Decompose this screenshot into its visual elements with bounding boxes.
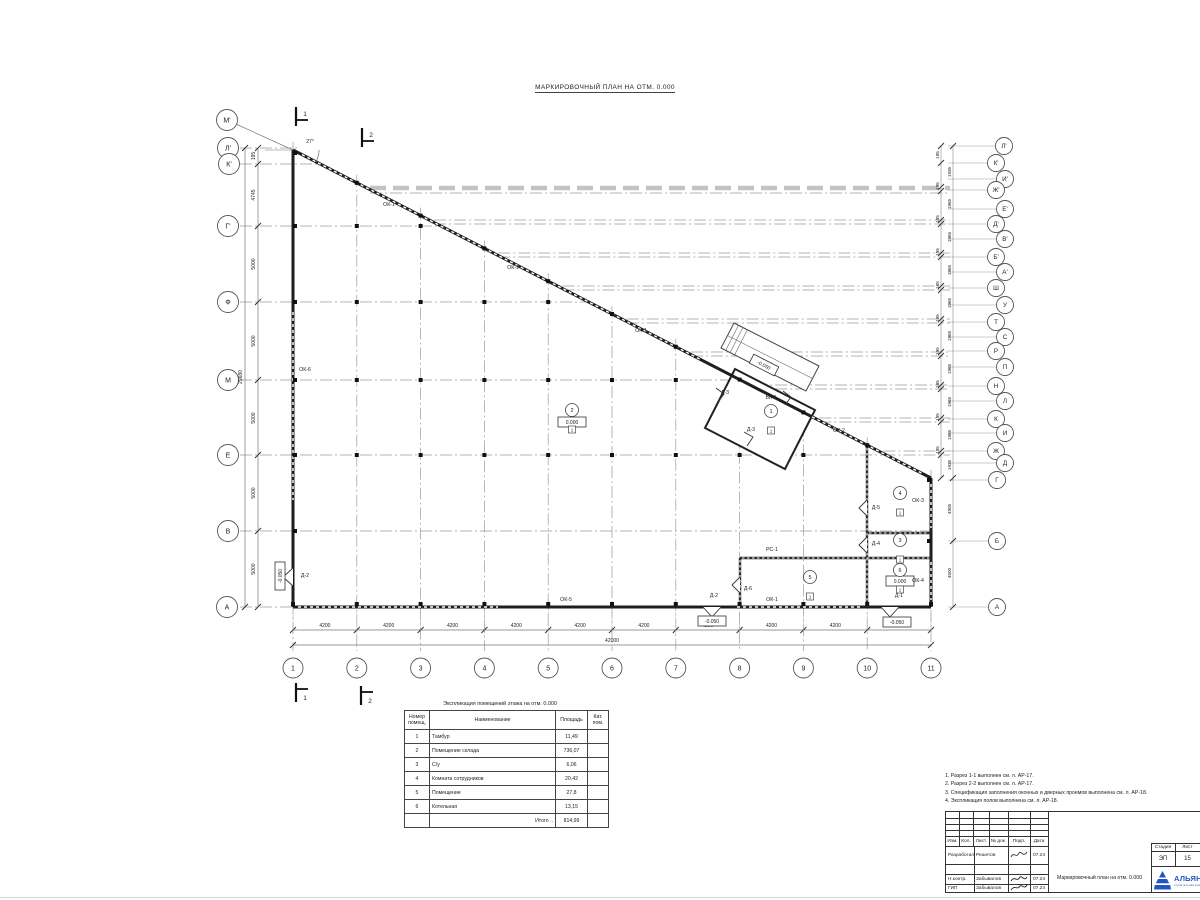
axis-bubble-label: 8 (738, 666, 742, 673)
sheet-label: Лист (1175, 843, 1200, 851)
window-door-label: Д-3 (747, 427, 755, 433)
door-symbol (703, 607, 721, 617)
schedule-table: Номер помещ.НаименованиеПлощадьКат. пом.… (404, 710, 609, 828)
axis-bubble-label: Б (995, 538, 999, 545)
dimension-text: 195 (935, 182, 940, 190)
sheet: МАРКИРОВОЧНЫЙ ПЛАН НА ОТМ. 0.000 1234567… (0, 0, 1200, 900)
axis-bubble-label: К' (226, 162, 231, 169)
column-marker (293, 151, 297, 155)
dimension-text: 4200 (638, 623, 649, 629)
logo-triangle-icon (1154, 871, 1171, 890)
column-marker (801, 453, 805, 457)
stamp-col-date: Дата (1030, 836, 1048, 846)
floor-plan: 1234567891011М'Л'К'Г'ФМЕВАЛ'К'И'Ж'Е'Д'В'… (0, 0, 1200, 760)
dimension-text: 5000 (251, 258, 257, 269)
title-block: Изм. Кол. Лист № док. Подп. Дата Разрабо… (945, 811, 1200, 893)
level-value: 0.000 (894, 579, 907, 585)
column-marker (355, 300, 359, 304)
column-marker (482, 453, 486, 457)
schedule-header: Номер помещ. (405, 711, 430, 730)
dimension-text: 195 (935, 413, 940, 421)
angle-arc (316, 150, 319, 162)
dimension-text: 42000 (605, 638, 619, 644)
dimension-text: 4500 (947, 567, 952, 578)
column-marker (865, 443, 869, 447)
axis-bubble-label: 7 (674, 666, 678, 673)
window-door-label: Вн-1 (766, 395, 777, 401)
stamp-role: Н.контр. (946, 874, 976, 884)
logo-subtext: строительная компания (1174, 883, 1200, 887)
window-door-label: ОК-1 (507, 265, 519, 271)
dimension-text: 195 (935, 314, 940, 322)
schedule-row: 2Помещение склада736,07 (405, 744, 609, 758)
axis-bubble-label: Е' (1002, 206, 1007, 213)
window-door-label: Д-4 (872, 541, 880, 547)
column-marker (610, 312, 614, 316)
notes: 1. Разрез 1-1 выполнен см. л. АР-17.2. Р… (945, 772, 1200, 806)
room-number: 4 (898, 491, 901, 497)
door-symbol (881, 607, 899, 617)
axis-bubble-label: Р (994, 348, 998, 355)
column-marker (419, 224, 423, 228)
column-marker (865, 602, 869, 606)
dimension-text: 1965 (947, 231, 952, 242)
dimension-text: 29680 (238, 370, 244, 384)
dimension-text: 4905 (947, 503, 952, 514)
total-value: 814,99 (556, 814, 588, 828)
signature (1008, 874, 1030, 884)
level-value: -0.050 (890, 620, 904, 626)
window-door-label: РС-1 (766, 547, 778, 553)
column-marker (738, 378, 742, 382)
axis-bubble-label: Л' (1001, 143, 1006, 150)
column-marker (738, 602, 742, 606)
dimension-text: 4200 (511, 623, 522, 629)
stamp-col-list: Лист (973, 836, 989, 846)
stamp-col-kol: Кол. (959, 836, 973, 846)
dimension-text: 5000 (251, 335, 257, 346)
dimension-text: 195 (935, 215, 940, 223)
column-marker (546, 453, 550, 457)
schedule-header: Наименование (430, 711, 556, 730)
column-marker (610, 378, 614, 382)
dimension-text: 4200 (830, 623, 841, 629)
schedule-header: Площадь (556, 711, 588, 730)
stamp-name: Забывалов (974, 884, 1010, 892)
signature (1008, 884, 1030, 892)
stamp-name: Решетов (974, 846, 1010, 864)
column-marker (482, 378, 486, 382)
column-marker (355, 453, 359, 457)
axis-bubble-label: С (1003, 334, 1008, 341)
window-door-label: ОК-2 (833, 428, 845, 434)
schedule-row: 6Котельная13,15 (405, 800, 609, 814)
axis-bubble-label: Ж' (992, 187, 999, 194)
column-marker (293, 378, 297, 382)
column-marker (293, 529, 297, 533)
axis-bubble-label: 1 (291, 666, 295, 673)
window-door-label: Д-5 (872, 505, 880, 511)
stamp-col-doc: № док. (989, 836, 1008, 846)
column-marker (546, 378, 550, 382)
window-door-label: Д-1 (895, 593, 903, 599)
stamp-col-izm: Изм. (946, 836, 959, 846)
axis-bubble-label: Н (994, 383, 999, 390)
dimension-text: 4745 (251, 189, 257, 200)
column-marker (929, 602, 933, 606)
dimension-text: 195 (935, 281, 940, 289)
dimension-text: 4200 (319, 623, 330, 629)
dimension-text: 195 (935, 347, 940, 355)
window-door-label: ОК-1 (635, 328, 647, 334)
axis-bubble-label: 5 (546, 666, 550, 673)
axis-bubble-label: Д (1003, 460, 1008, 467)
column-marker (291, 602, 295, 606)
axis-bubble-label: И (1003, 430, 1008, 437)
schedule-header: Кат. пом. (588, 711, 609, 730)
room-number: 1 (769, 409, 772, 415)
level-mark: 0.000 (886, 576, 914, 586)
axis-bubble-label: Д' (993, 221, 998, 228)
window-door-label: ОК-1 (383, 202, 395, 208)
column-marker (927, 539, 931, 543)
column-marker (927, 478, 931, 482)
dimension-text: 5000 (251, 563, 257, 574)
axis-bubble-label: Г' (225, 224, 230, 231)
column-marker (674, 602, 678, 606)
note-line: 3. Спецификация заполнения оконных и две… (945, 789, 1200, 797)
axis-bubble-label: К (994, 416, 998, 423)
window-door-label: ОК-5 (560, 597, 572, 603)
column-marker (355, 224, 359, 228)
dimension-text: 195 (935, 380, 940, 388)
dimension-text: 195 (251, 152, 257, 161)
level-value: 0.000 (566, 420, 579, 426)
door-symbol (859, 537, 867, 553)
axis-bubble-label: М (225, 378, 231, 385)
column-marker (293, 300, 297, 304)
column-marker (419, 214, 423, 218)
dimension-text: 4200 (447, 623, 458, 629)
schedule-row: 5Помещение27,8 (405, 786, 609, 800)
room-number: 6 (898, 568, 901, 574)
axis-bubble-label: В' (1002, 236, 1007, 243)
stamp-col-sign: Подп. (1008, 836, 1030, 846)
stamp-name: Забывалов (974, 874, 1010, 884)
section-number: 2 (368, 698, 372, 705)
axis-bubble-label: 11 (927, 666, 934, 673)
stamp-role: Разработал (946, 846, 976, 864)
dimension-text: 1965 (947, 330, 952, 341)
axis-leader (236, 124, 293, 150)
axis-bubble-label: Е (226, 453, 231, 460)
axis-bubble-label: 4 (482, 666, 486, 673)
note-line: 1. Разрез 1-1 выполнен см. л. АР-17. (945, 772, 1200, 780)
angle-label: 27° (306, 139, 314, 145)
level-value: -0.050 (278, 569, 284, 583)
room-number: 5 (808, 575, 811, 581)
axis-bubble-label: 6 (610, 666, 614, 673)
axis-bubble-label: Л (1003, 398, 1007, 405)
column-marker (355, 602, 359, 606)
level-mark: -0.050 (698, 616, 726, 626)
dimension-text: 5000 (251, 412, 257, 423)
note-line: 2. Разрез 2-2 выполнен см. л. АР-17. (945, 780, 1200, 788)
axis-bubble-label: Ж (993, 448, 999, 455)
page-bottom-edge (0, 897, 1200, 898)
window-door-label: Д-3 (721, 390, 729, 396)
door-symbol (732, 577, 740, 593)
room-number: 3 (898, 538, 901, 544)
column-marker (801, 410, 805, 414)
axis-bubble-label: Л' (225, 146, 231, 153)
section-number: 2 (369, 132, 373, 139)
dimension-text: 1965 (947, 396, 952, 407)
schedule-row: 3С/у6,06 (405, 758, 609, 772)
column-marker (674, 453, 678, 457)
schedule-title: Экспликация помещений этажа на отм. 0.00… (404, 701, 596, 707)
stamp-date: 07.24 (1030, 874, 1048, 884)
axis-bubble-label: 9 (801, 666, 805, 673)
dimension-text: 195 (935, 446, 940, 454)
window-door-label: ОК-4 (912, 578, 924, 584)
window-door-label: ОК-3 (912, 498, 924, 504)
column-marker (355, 181, 359, 185)
column-marker (293, 224, 297, 228)
column-marker (482, 300, 486, 304)
axis-bubble-label: Б' (993, 254, 998, 261)
axis-bubble-label: В (226, 529, 231, 536)
column-marker (482, 246, 486, 250)
column-marker (674, 378, 678, 382)
stamp-date: 07.24 (1030, 884, 1048, 892)
column-marker (674, 345, 678, 349)
section-number: 1 (303, 111, 307, 118)
dimension-text: 1935 (947, 459, 952, 470)
stamp-date: 07.24 (1030, 846, 1048, 864)
dimension-text: 4200 (383, 623, 394, 629)
column-marker (419, 300, 423, 304)
stamp-doc-title: Маркировочный план на отм. 0.000 (1048, 864, 1151, 892)
dimension-text: 1965 (947, 363, 952, 374)
dimension-text: 195 (935, 151, 940, 159)
column-marker (801, 602, 805, 606)
dimension-text: 195 (935, 248, 940, 256)
stage-value: ЭП (1151, 851, 1175, 866)
note-line: 4. Экспликация полов выполнена см. л. АР… (945, 797, 1200, 805)
axis-bubble-label: М' (223, 118, 230, 125)
schedule-row: 1Тамбур11,49 (405, 730, 609, 744)
column-marker (546, 602, 550, 606)
sheet-value: 15 (1175, 851, 1200, 866)
axis-bubble-label: П (1003, 364, 1008, 371)
column-marker (482, 602, 486, 606)
company-logo: АЛЬЯНС строительная компания (1154, 869, 1200, 892)
level-value: -0.050 (705, 619, 719, 625)
axis-bubble-label: Г (995, 477, 999, 484)
window-door-label: Д-2 (301, 573, 309, 579)
column-marker (419, 378, 423, 382)
room-schedule: Экспликация помещений этажа на отм. 0.00… (404, 701, 596, 828)
axis-bubble-label: 2 (355, 666, 359, 673)
axis-bubble-label: А' (1002, 269, 1007, 276)
axis-bubble-label: Т (994, 319, 998, 326)
column-marker (546, 279, 550, 283)
column-marker (419, 453, 423, 457)
dimension-text: 1965 (947, 297, 952, 308)
column-marker (610, 602, 614, 606)
column-marker (610, 453, 614, 457)
axis-bubble-label: Ш (993, 285, 999, 292)
schedule-total-row: Итого ..814,99 (405, 814, 609, 828)
axis-bubble-label: И' (1002, 176, 1008, 183)
dimension-text: 4200 (766, 623, 777, 629)
dimension-text: 5000 (251, 487, 257, 498)
level-mark: -0.050 (275, 562, 285, 590)
column-marker (419, 602, 423, 606)
dimension-text: 1965 (947, 198, 952, 209)
level-mark: 0.000 (558, 417, 586, 427)
total-label: Итого .. (430, 814, 556, 828)
door-symbol (859, 500, 867, 516)
signature (1008, 846, 1030, 864)
column-marker (546, 300, 550, 304)
column-marker (738, 453, 742, 457)
axis-bubble-label: А (225, 605, 230, 612)
dimension-text: 1965 (947, 264, 952, 275)
axis-bubble-label: 10 (863, 666, 871, 673)
logo-text: АЛЬЯНС (1174, 874, 1200, 883)
dimension-text: 4200 (575, 623, 586, 629)
window-door-label: ОК-1 (766, 597, 778, 603)
level-mark: -0.050 (883, 617, 911, 627)
stamp-role: ГИП (946, 884, 976, 892)
column-marker (355, 378, 359, 382)
room-number: 2 (570, 408, 573, 414)
window-door-label: ОК-6 (299, 367, 311, 373)
axis-bubble-label: К' (994, 160, 999, 167)
stage-label: Стадия (1151, 843, 1175, 851)
section-number: 1 (303, 695, 307, 702)
window-door-label: Д-6 (744, 586, 752, 592)
axis-bubble-label: Ф (225, 300, 230, 307)
axis-bubble-label: 3 (419, 666, 423, 673)
schedule-row: 4Комната сотрудников20,42 (405, 772, 609, 786)
dimension-text: 1965 (947, 429, 952, 440)
dimension-text: 1935 (947, 166, 952, 177)
window-door-label: Д-2 (710, 593, 718, 599)
column-marker (293, 453, 297, 457)
